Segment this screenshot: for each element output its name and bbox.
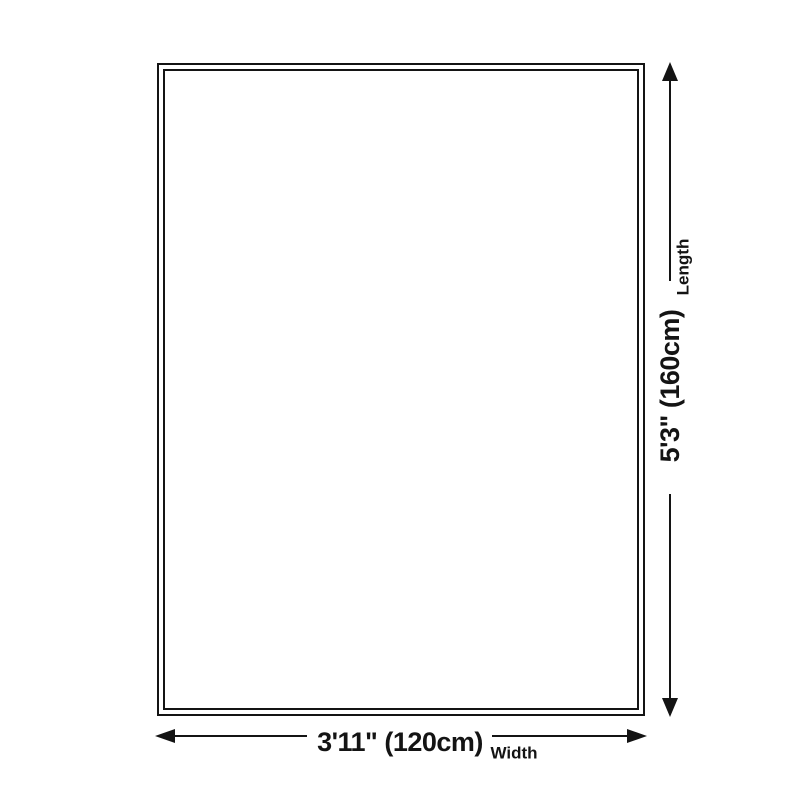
length-line-bottom: [669, 494, 672, 699]
arrow-left-icon: [155, 729, 175, 743]
arrow-down-icon: [662, 698, 678, 717]
rug-outline: [157, 63, 645, 716]
length-line-top: [669, 79, 672, 281]
arrow-right-icon: [627, 729, 647, 743]
rug-inner-outline: [163, 69, 639, 710]
width-axis-label: Width: [490, 745, 537, 764]
rug-size-diagram: Length 5'3" (160cm) 3'11" (120cm) Width: [0, 0, 800, 800]
length-axis-label: Length: [675, 239, 694, 296]
width-line-right: [492, 735, 628, 738]
length-value-label: 5'3" (160cm): [656, 310, 686, 463]
width-line-left: [174, 735, 307, 738]
width-value-label: 3'11" (120cm): [317, 728, 483, 758]
